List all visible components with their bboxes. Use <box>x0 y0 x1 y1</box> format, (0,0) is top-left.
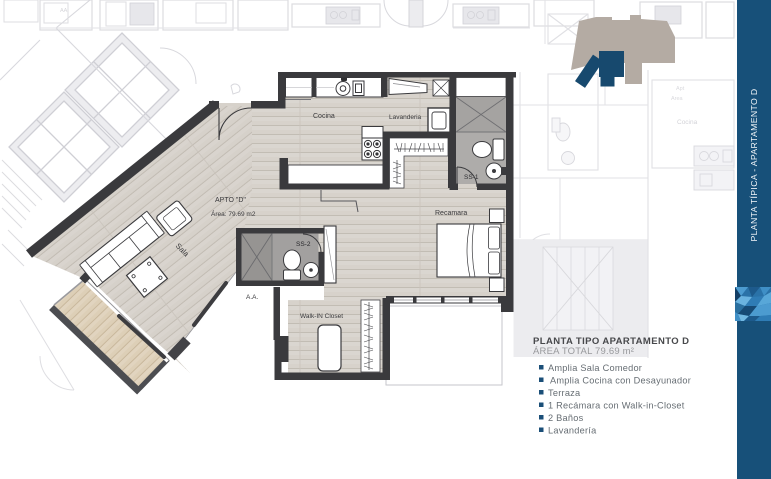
svg-text:Cocina: Cocina <box>313 113 335 120</box>
svg-text:Apt: Apt <box>676 86 685 92</box>
svg-text:Area: Area <box>671 96 684 102</box>
svg-text:Lavandería: Lavandería <box>548 426 597 436</box>
svg-text:Amplia Cocina con Desayunador: Amplia Cocina con Desayunador <box>550 376 691 386</box>
svg-text:Área: 79.69 m2: Área: 79.69 m2 <box>211 209 256 218</box>
svg-text:Recamara: Recamara <box>435 210 467 217</box>
svg-text:ÁREA TOTAL 79.69 m²: ÁREA TOTAL 79.69 m² <box>533 346 634 357</box>
svg-text:PLANTA TÍPICA - APARTAMENTO D: PLANTA TÍPICA - APARTAMENTO D <box>749 88 759 241</box>
svg-text:Walk-IN Closet: Walk-IN Closet <box>300 313 343 320</box>
svg-text:Cocina: Cocina <box>677 119 698 126</box>
svg-text:Amplia Sala Comedor: Amplia Sala Comedor <box>548 363 642 373</box>
svg-text:A.A.: A.A. <box>246 294 258 301</box>
svg-text:SS-2: SS-2 <box>296 241 311 248</box>
svg-text:SS-1: SS-1 <box>464 174 479 181</box>
svg-text:2 Baños: 2 Baños <box>548 413 584 423</box>
svg-text:APTO "D": APTO "D" <box>215 197 246 204</box>
svg-text:1 Recámara con Walk-in-Closet: 1 Recámara con Walk-in-Closet <box>548 401 685 411</box>
svg-text:Terraza: Terraza <box>548 388 581 398</box>
svg-text:Lavanderia: Lavanderia <box>389 114 422 121</box>
svg-text:AA: AA <box>60 8 68 14</box>
